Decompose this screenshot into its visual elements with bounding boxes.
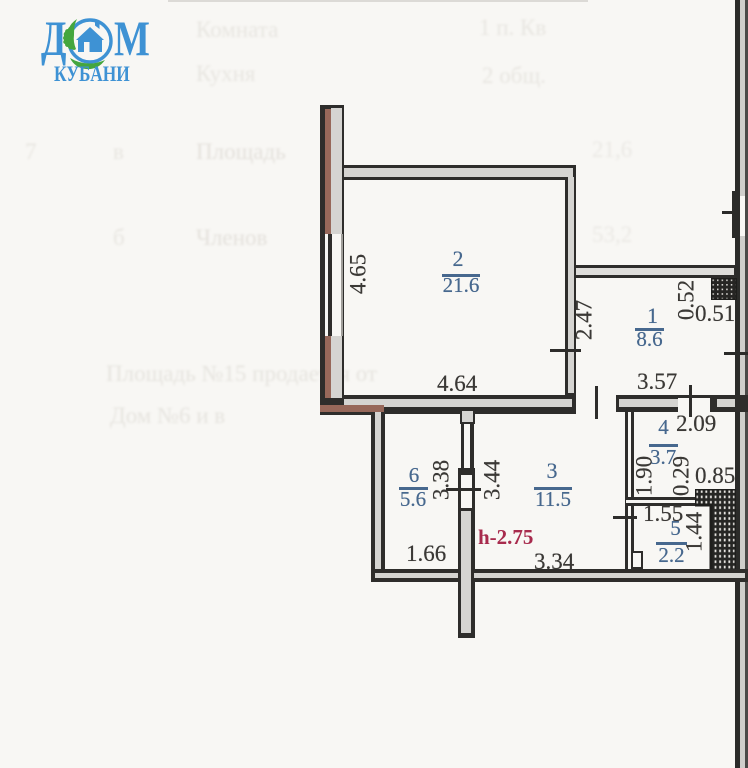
svg-text:М: М [114,10,150,66]
svg-text:КУБАНИ: КУБАНИ [54,62,130,86]
svg-text:Д: Д [41,11,66,67]
